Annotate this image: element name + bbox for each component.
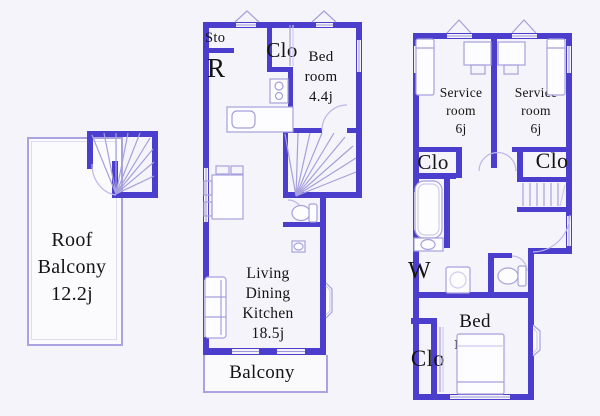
stairs [523,183,565,206]
door-arc [479,153,516,172]
toilet [292,204,317,222]
roof-vent [235,11,336,22]
bathtub [415,181,442,238]
hand-basin [292,241,305,252]
door-arc [533,215,570,252]
bay-window [326,283,332,318]
fixtures-linework [0,0,600,416]
sofa [205,277,226,338]
closet-sliding-door [440,327,443,392]
stairs [92,133,154,194]
kitchen-counter [227,107,293,132]
stove [270,79,288,103]
vanity-basin [414,238,443,251]
toilet [498,266,526,286]
stairs [285,133,356,196]
dining-table [204,166,243,219]
desk [464,42,525,74]
door-arc [322,105,347,130]
door-arc [92,164,116,195]
closet-sliding-door [290,25,293,66]
washing-machine [446,267,470,293]
bay-window [533,325,540,356]
bed [457,334,504,394]
floor-plan: Roof Balcony 12.2j Balcony Sto R Clo Bed… [0,0,600,416]
roof-vent [447,20,536,33]
